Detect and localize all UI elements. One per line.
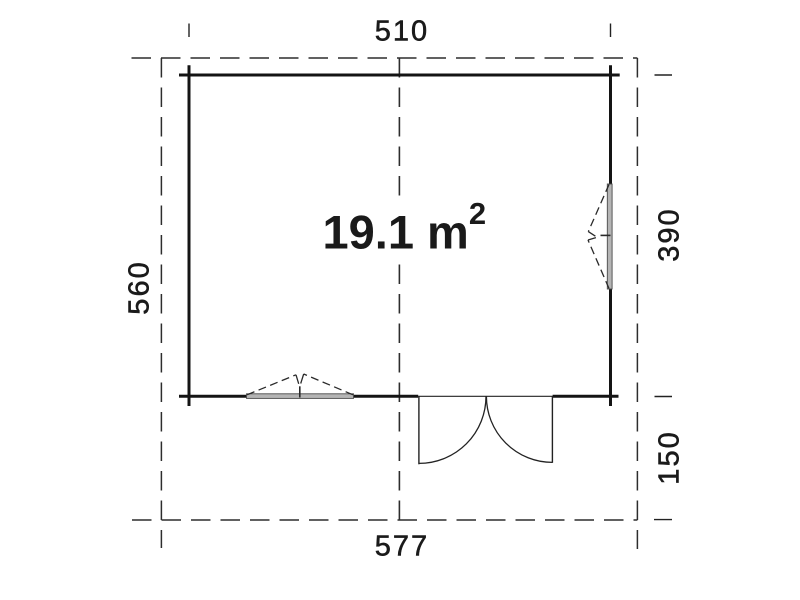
svg-text:560: 560 [124, 260, 156, 314]
svg-text:390: 390 [654, 207, 686, 261]
svg-text:19.1 m2: 19.1 m2 [323, 196, 487, 259]
svg-text:510: 510 [375, 16, 429, 48]
svg-text:577: 577 [375, 531, 429, 563]
svg-text:150: 150 [653, 430, 685, 484]
